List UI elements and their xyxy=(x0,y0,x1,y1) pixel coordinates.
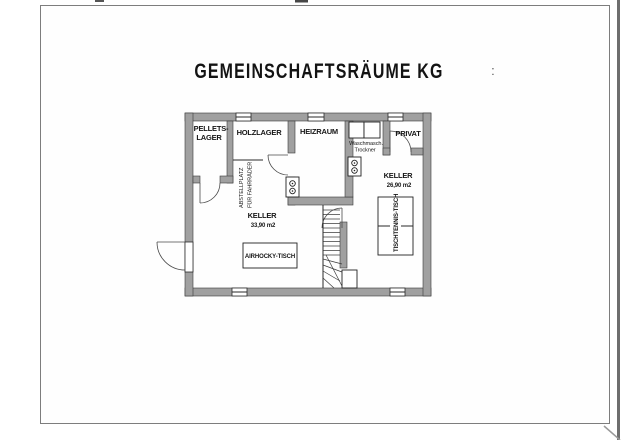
exterior-door xyxy=(157,242,193,272)
window-top-1 xyxy=(236,113,251,121)
room-label-keller-small: KELLER xyxy=(384,171,414,180)
area-label-keller-large: 33,90 m2 xyxy=(251,223,276,229)
washer-dryer-units xyxy=(349,122,380,138)
window-bottom-1 xyxy=(232,288,247,296)
washer-label: Waschmasch. xyxy=(349,141,383,147)
pellets-bottom-wall-right xyxy=(220,176,233,183)
outer-wall-right xyxy=(423,113,431,296)
table-tennis-label: TISCHTENNIS-TISCH xyxy=(394,194,400,252)
window-top-3 xyxy=(388,113,403,121)
privat-bottom-wall-right xyxy=(411,148,423,155)
stair-treads xyxy=(324,210,341,255)
under-stair-closet xyxy=(342,270,357,288)
stair-winders xyxy=(323,255,342,288)
window-top-2 xyxy=(308,113,324,121)
floor-plan-svg: AIRHOCKY-TISCH TISCHTENNIS-TISCH PELLETS… xyxy=(0,0,623,440)
scanned-floor-plan-page: GEMEINSCHAFTSRÄUME KG: xyxy=(0,0,623,440)
bike-area-label-line2: FÜR FAHRRÄDER xyxy=(247,162,254,208)
pellets-door xyxy=(200,183,220,203)
pellets-bottom-wall-left xyxy=(193,176,200,183)
dryer-label: Trockner xyxy=(354,148,375,154)
stairwell-wall xyxy=(340,222,347,268)
heizraum-bottom-wall xyxy=(288,197,353,205)
room-label-pellets-line1: PELLETS- xyxy=(194,124,229,133)
table-tennis-table: TISCHTENNIS-TISCH xyxy=(378,194,413,255)
room-label-pellets-line2: LAGER xyxy=(196,133,222,142)
heizraum-left-wall-upper xyxy=(288,121,295,153)
scan-artifacts xyxy=(95,0,620,440)
room-label-privat: PRIVAT xyxy=(395,129,421,138)
boiler-unit-heizraum xyxy=(286,177,299,197)
washing-machine-icon xyxy=(349,122,364,138)
boiler-unit-keller xyxy=(348,157,361,176)
bike-area-label: ABSTELLPLATZ FÜR FAHRRÄDER xyxy=(239,162,254,208)
stairwell-door xyxy=(322,208,342,228)
area-label-keller-small: 26,90 m2 xyxy=(387,183,412,189)
dryer-icon xyxy=(364,122,380,138)
privat-bottom-wall-corner xyxy=(383,148,390,155)
room-label-keller-large: KELLER xyxy=(248,211,278,220)
heizraum-door xyxy=(268,155,288,175)
room-label-holzlager: HOLZLAGER xyxy=(237,128,283,137)
window-bottom-2 xyxy=(390,288,405,296)
room-label-heizraum: HEIZRAUM xyxy=(300,127,338,136)
bike-area-label-line1: ABSTELLPLATZ xyxy=(239,167,245,208)
air-hockey-label: AIRHOCKY-TISCH xyxy=(245,254,295,260)
air-hockey-table: AIRHOCKY-TISCH xyxy=(243,243,297,268)
